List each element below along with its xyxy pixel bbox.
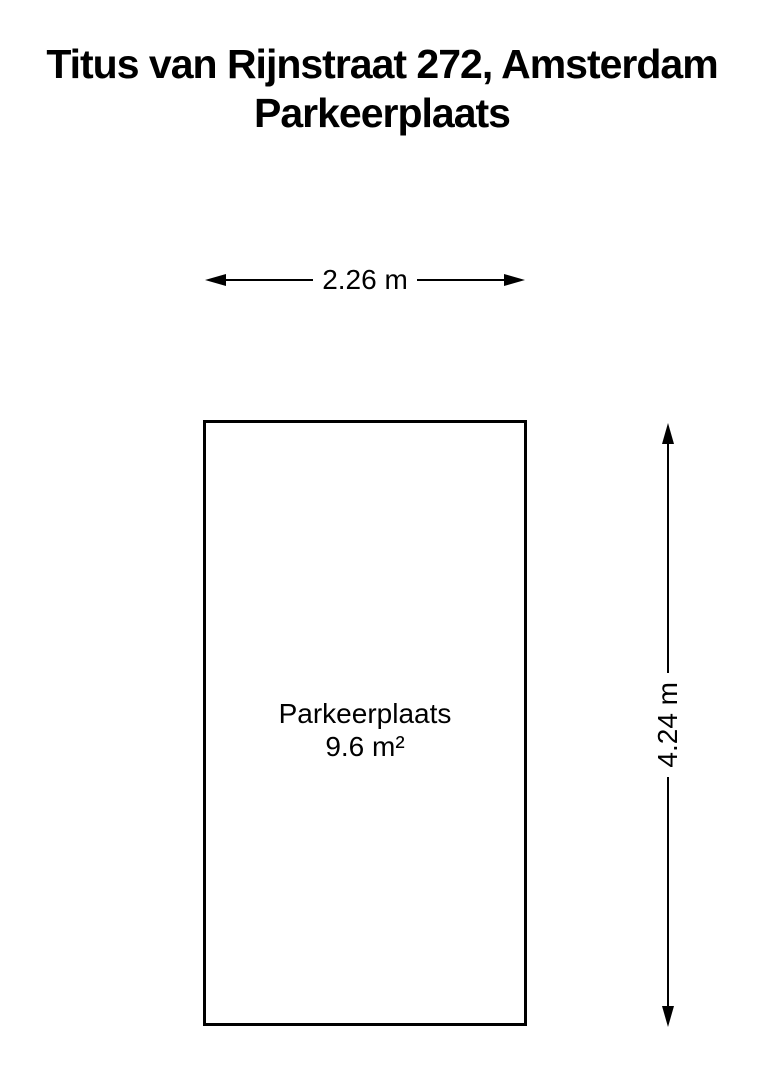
arrow-left-icon	[205, 274, 226, 286]
floorplan-page: Titus van Rijnstraat 272, Amsterdam Park…	[0, 0, 764, 1080]
width-dimension: 2.26 m	[205, 258, 525, 302]
dimension-line	[667, 777, 669, 1006]
parking-space-outline: Parkeerplaats 9.6 m²	[203, 420, 527, 1026]
dimension-line	[226, 279, 313, 281]
dimension-line	[667, 444, 669, 673]
room-name-label: Parkeerplaats	[279, 697, 452, 730]
page-title: Titus van Rijnstraat 272, Amsterdam Park…	[0, 40, 764, 138]
arrow-down-icon	[662, 1006, 674, 1027]
page-title-line-1: Titus van Rijnstraat 272, Amsterdam	[0, 40, 764, 89]
arrow-up-icon	[662, 423, 674, 444]
height-dimension-label: 4.24 m	[654, 673, 682, 777]
room-area-label: 9.6 m²	[325, 730, 404, 763]
height-dimension: 4.24 m	[646, 423, 690, 1027]
width-dimension-label: 2.26 m	[313, 266, 417, 294]
arrow-right-icon	[504, 274, 525, 286]
page-title-line-2: Parkeerplaats	[0, 89, 764, 138]
dimension-line	[417, 279, 504, 281]
